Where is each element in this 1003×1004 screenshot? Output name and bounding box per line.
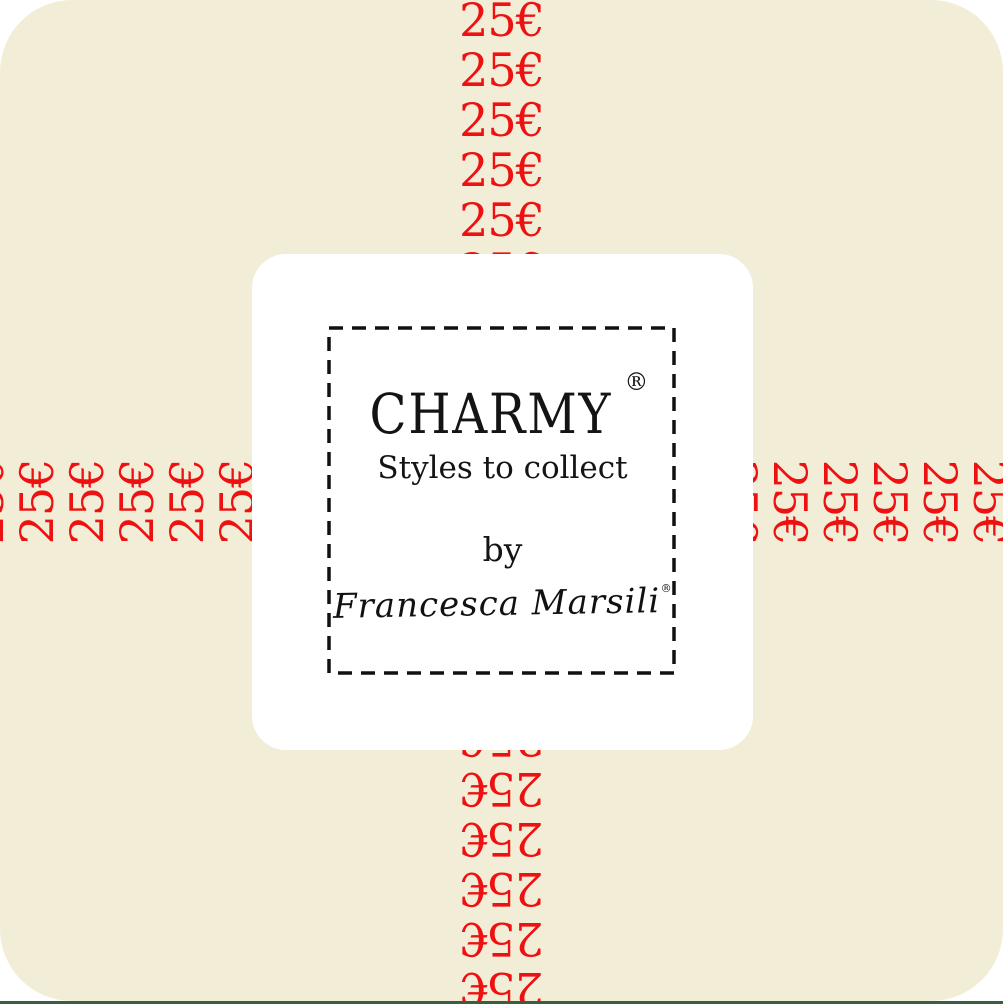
price-text: 25€: [0, 195, 1003, 245]
gift-card-design: 25€25€25€25€25€25€ 25€25€25€25€25€25€ 25…: [0, 0, 1003, 1004]
signature-registered-icon: ®: [661, 582, 672, 595]
price-text: 25€: [0, 0, 1003, 45]
designer-signature: Francesca Marsili: [333, 581, 661, 627]
registered-trademark-icon: ®: [624, 368, 648, 396]
price-text: 25€: [0, 145, 1003, 195]
price-strip-right: 25€25€25€25€25€25€: [715, 352, 1003, 652]
price-text: 25€: [0, 764, 1003, 814]
brand-name: CHARMY: [369, 382, 612, 446]
price-text: 25€: [0, 814, 1003, 864]
brand-label-panel: CHARMY® Styles to collect by Francesca M…: [252, 254, 753, 750]
brand-tagline: Styles to collect: [252, 450, 753, 486]
price-strip-top: 25€25€25€25€25€25€: [0, 0, 1003, 295]
by-label: by: [252, 530, 753, 569]
price-text: 25€: [0, 964, 1003, 1004]
price-text: 25€: [840, 477, 1003, 527]
price-strip-bottom: 25€25€25€25€25€25€: [0, 714, 1003, 1004]
brand-row: CHARMY®: [252, 382, 753, 446]
price-text: 25€: [0, 864, 1003, 914]
price-text: 25€: [0, 914, 1003, 964]
price-text: 25€: [0, 95, 1003, 145]
price-text: 25€: [0, 45, 1003, 95]
designer-signature-row: Francesca Marsili®: [252, 584, 753, 624]
